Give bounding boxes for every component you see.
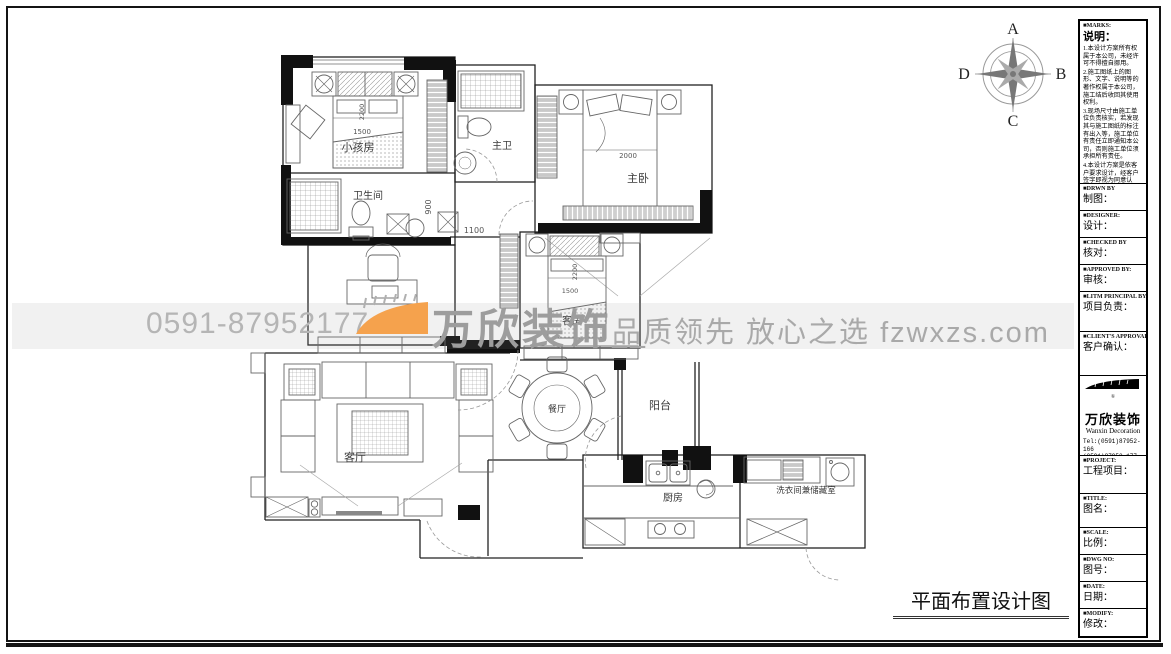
dim-kids-1500: 1500 — [353, 128, 371, 136]
titleblock-company: ® 万欣装饰 Wanxin Decoration Tel:(0591)87952… — [1080, 376, 1146, 456]
company-tel-1: Tel:(0591)87952-166 — [1083, 438, 1143, 453]
company-name: 万欣装饰 — [1083, 413, 1143, 427]
titleblock-date: ■DATE: 日期： — [1080, 582, 1146, 609]
dim-guest-1500: 1500 — [562, 287, 579, 295]
dwg-no-label-zh: 图号： — [1083, 564, 1143, 577]
dwg-no-label-en: ■DWG NO: — [1083, 556, 1143, 564]
titleblock-title: ■TITLE: 图名： — [1080, 494, 1146, 528]
designer-label-zh: 设计： — [1083, 220, 1143, 233]
title-label-zh: 图名： — [1083, 503, 1143, 516]
master-bathroom-furniture — [454, 71, 524, 174]
company-name-en: Wanxin Decoration — [1083, 427, 1143, 436]
drawn-by-label-en: ■DRWN BY — [1083, 185, 1143, 193]
titleblock: ■MARKS: 说明： 1.本设计方案所有权属于本公司，未经许可不得擅自挪用。 … — [1078, 19, 1148, 638]
compass-north-label: A — [1007, 21, 1019, 38]
company-logo-swoosh-icon — [1083, 377, 1143, 390]
dimension-texts: 1500 2200 900 1100 2000 2200 1500 — [353, 104, 637, 295]
titleblock-checked-by: ■CHECKED BY 核对： — [1080, 238, 1146, 265]
room-label-kitchen: 厨房 — [663, 491, 683, 504]
principal-label-en: ■LITM PRINCIPAL BY: — [1083, 293, 1143, 301]
room-label-master-bedroom: 主卧 — [627, 172, 649, 185]
bathroom-furniture — [287, 179, 373, 240]
titleblock-principal: ■LITM PRINCIPAL BY: 项目负责： — [1080, 292, 1146, 332]
marks-note-1: 1.本设计方案所有权属于本公司，未经许可不得擅自挪用。 — [1083, 45, 1143, 68]
dim-guest-2200: 2200 — [571, 264, 579, 281]
titleblock-scale: ■SCALE: 比例： — [1080, 528, 1146, 555]
laundry-furniture — [744, 457, 854, 545]
project-label-en: ■PROJECT: — [1083, 457, 1143, 465]
dim-master-2000: 2000 — [619, 152, 637, 160]
scale-label-zh: 比例： — [1083, 537, 1143, 550]
compass-south-label: C — [1008, 113, 1019, 130]
watermark-slogan: 品质领先 放心之选 fzwxzs.com — [612, 309, 1050, 351]
titleblock-marks: ■MARKS: 说明： 1.本设计方案所有权属于本公司，未经许可不得擅自挪用。 … — [1080, 21, 1146, 184]
room-label-dining: 餐厅 — [548, 403, 566, 414]
approved-by-label-en: ■APPROVED BY: — [1083, 266, 1143, 274]
master-bedroom-furniture — [537, 90, 710, 296]
scale-label-en: ■SCALE: — [1083, 529, 1143, 537]
titleblock-dwg-no: ■DWG NO: 图号： — [1080, 555, 1146, 582]
date-label-en: ■DATE: — [1083, 583, 1143, 591]
modify-label-en: ■MODIFY: — [1083, 610, 1143, 618]
watermark-phone: 0591-87952177 — [146, 307, 369, 341]
titleblock-project: ■PROJECT: 工程项目： — [1080, 456, 1146, 494]
compass-east-label: B — [1056, 66, 1067, 83]
marks-note-4: 4.本设计方案是依客户要求设计，经客户签字即视为同意认可，不得随意更改。 — [1083, 162, 1143, 184]
designer-label-en: ■DESIGNER: — [1083, 212, 1143, 220]
marks-note-3: 3.现场尺寸由施工单位负责核实，若发现其与施工图纸的标注有出入等，施工单位有责任… — [1083, 108, 1143, 161]
living-room-furniture — [251, 353, 493, 517]
kitchen-furniture — [583, 461, 740, 545]
watermark-logo-icon — [354, 294, 430, 336]
room-label-balcony: 阳台 — [649, 398, 671, 412]
principal-label-zh: 项目负责： — [1083, 301, 1143, 314]
drawing-title: 平面布置设计图 — [893, 585, 1069, 619]
room-label-living: 客厅 — [344, 450, 366, 464]
room-label-laundry: 洗衣间兼储藏室 — [776, 485, 836, 495]
room-label-kids: 小孩房 — [342, 141, 375, 154]
client-approval-label-en: ■CLIENT'S APPROVAL: — [1083, 333, 1143, 341]
approved-by-label-zh: 审核： — [1083, 274, 1143, 287]
titleblock-modify: ■MODIFY: 修改： — [1080, 609, 1146, 636]
dim-corridor-900: 900 — [424, 199, 433, 214]
dim-kids-2200: 2200 — [358, 104, 366, 121]
watermark-brand-text: 万欣装饰 — [432, 308, 612, 354]
titleblock-approved-by: ■APPROVED BY: 审核： — [1080, 265, 1146, 292]
marks-note-2: 2.施工图纸上的图形、文字、说明等的著作权属于本公司，施工结后收回其使用权利。 — [1083, 69, 1143, 107]
modify-label-zh: 修改： — [1083, 618, 1143, 631]
checked-by-label-zh: 核对： — [1083, 247, 1143, 260]
titleblock-client-approval: ■CLIENT'S APPROVAL: 客户确认： — [1080, 332, 1146, 376]
room-label-bathroom: 卫生间 — [353, 189, 383, 202]
titleblock-designer: ■DESIGNER: 设计： — [1080, 211, 1146, 238]
checked-by-label-en: ■CHECKED BY — [1083, 239, 1143, 247]
marks-label-zh: 说明： — [1083, 30, 1143, 44]
drawing-sheet: { "sheet": { "drawing_title": "平面布置设计图",… — [0, 0, 1171, 654]
drawn-by-label-zh: 制图： — [1083, 193, 1143, 206]
dim-hall-1100: 1100 — [464, 226, 484, 235]
marks-label-en: ■MARKS: — [1083, 22, 1143, 30]
date-label-zh: 日期： — [1083, 591, 1143, 604]
compass-west-label: D — [958, 66, 970, 83]
title-label-en: ■TITLE: — [1083, 495, 1143, 503]
titleblock-drawn-by: ■DRWN BY 制图： — [1080, 184, 1146, 211]
compass-icon: A B C D — [958, 21, 1066, 130]
company-reg-mark: ® — [1111, 395, 1115, 400]
room-label-master-bath: 主卫 — [492, 140, 512, 152]
client-approval-label-zh: 客户确认： — [1083, 341, 1143, 354]
project-label-zh: 工程项目： — [1083, 465, 1143, 478]
